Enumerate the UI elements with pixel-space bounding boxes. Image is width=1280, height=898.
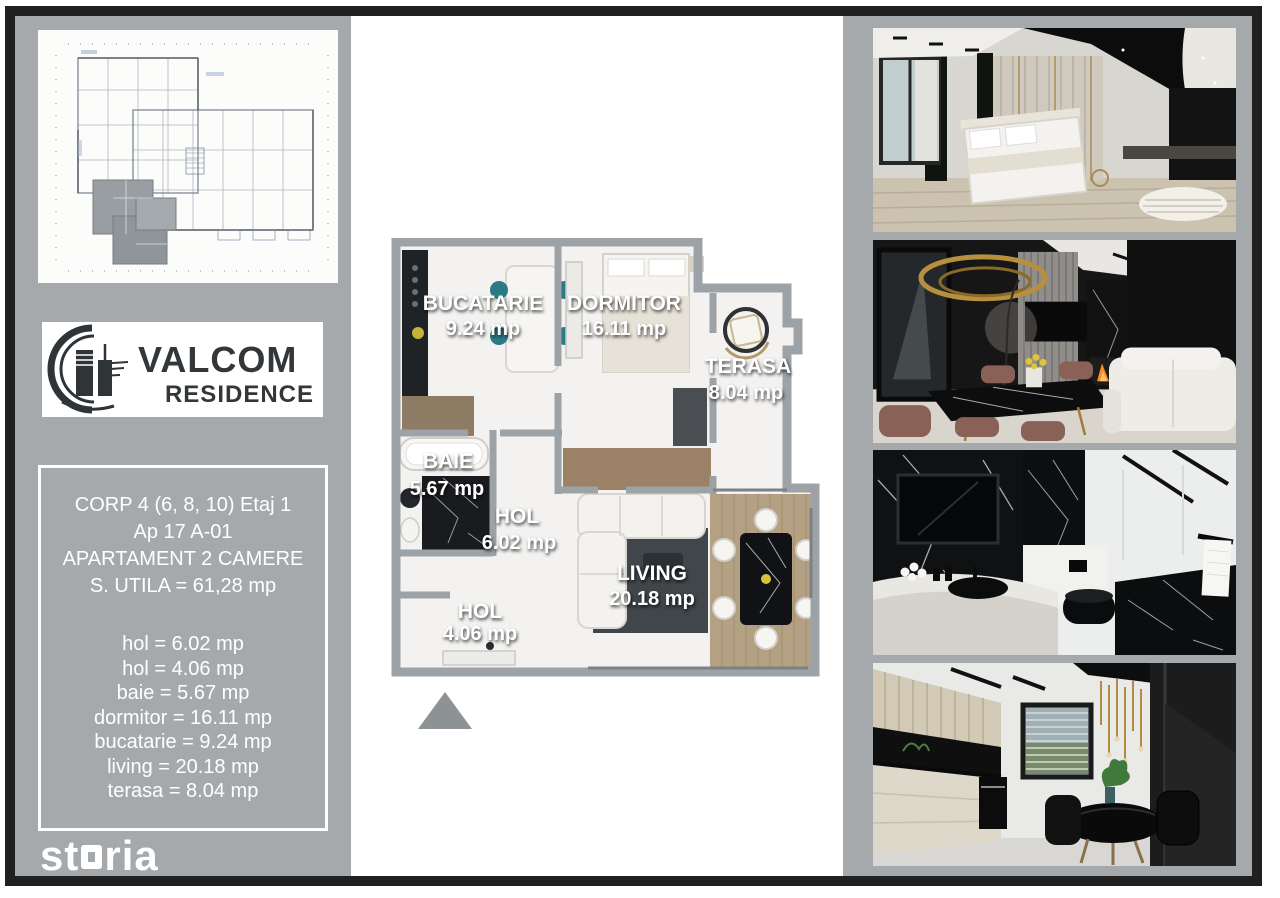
valcom-logo: VALCOM RESIDENCE xyxy=(42,322,323,417)
bedroom-render xyxy=(873,28,1236,232)
room-area-item: bucatarie = 9.24 mp xyxy=(41,730,325,755)
room-label-dormitor: DORMITOR xyxy=(567,292,681,315)
apartment-info-box: CORP 4 (6, 8, 10) Etaj 1 Ap 17 A-01 APAR… xyxy=(38,465,328,831)
room-label-baie: BAIE xyxy=(423,450,473,473)
logo-text-valcom: VALCOM xyxy=(138,339,297,380)
storia-text-right: ria xyxy=(104,832,158,880)
storia-watermark: stria xyxy=(40,832,159,880)
building-floor-plan-thumbnail xyxy=(38,30,338,283)
storia-o-glyph xyxy=(81,845,102,869)
storia-text-left: st xyxy=(40,832,79,880)
building-floor-plan-drawing xyxy=(38,30,338,283)
info-line-type: APARTAMENT 2 CAMERE xyxy=(41,546,325,573)
room-label-hol2: HOL xyxy=(458,600,503,623)
room-label-terasa: TERASA xyxy=(705,355,791,378)
room-area-living: 20.18 mp xyxy=(609,588,695,610)
logo-building-icon xyxy=(51,328,128,410)
room-area-hol1: 6.02 mp xyxy=(482,532,556,554)
room-area-terasa: 8.04 mp xyxy=(709,382,783,404)
photo-bedroom xyxy=(873,28,1236,232)
flyer-frame: VALCOM RESIDENCE CORP 4 (6, 8, 10) Etaj … xyxy=(5,6,1262,886)
logo-text-residence: RESIDENCE xyxy=(165,381,314,408)
room-area-item: terasa = 8.04 mp xyxy=(41,779,325,804)
logo-graphic: VALCOM RESIDENCE xyxy=(42,322,323,417)
info-line-ap: Ap 17 A-01 xyxy=(41,519,325,546)
photo-dining-living xyxy=(873,240,1236,443)
north-arrow-icon xyxy=(418,692,472,729)
photo-bathroom xyxy=(873,450,1236,655)
room-area-dormitor: 16.11 mp xyxy=(582,318,667,340)
right-panel xyxy=(843,16,1252,876)
room-label-living: LIVING xyxy=(617,562,687,585)
apartment-floor-plan: BUCATARIE 9.24 mp DORMITOR 16.11 mp TERA… xyxy=(373,222,843,752)
info-line-area: S. UTILA = 61,28 mp xyxy=(41,573,325,600)
room-area-item: hol = 6.02 mp xyxy=(41,632,325,657)
room-label-hol1: HOL xyxy=(495,505,540,528)
apartment-plan-drawing: BUCATARIE 9.24 mp DORMITOR 16.11 mp TERA… xyxy=(388,238,828,688)
listing-flyer: VALCOM RESIDENCE CORP 4 (6, 8, 10) Etaj … xyxy=(0,0,1280,898)
room-area-item: baie = 5.67 mp xyxy=(41,681,325,706)
info-line-corp: CORP 4 (6, 8, 10) Etaj 1 xyxy=(41,492,325,519)
room-area-item: dormitor = 16.11 mp xyxy=(41,706,325,731)
kitchen-render xyxy=(873,663,1236,866)
room-areas-list: hol = 6.02 mp hol = 4.06 mp baie = 5.67 … xyxy=(41,632,325,804)
photo-kitchen xyxy=(873,663,1236,866)
room-label-bucatarie: BUCATARIE xyxy=(423,292,544,315)
room-area-bucatarie: 9.24 mp xyxy=(446,318,520,340)
room-area-baie: 5.67 mp xyxy=(410,478,484,500)
bedroom-wood-strip xyxy=(563,448,711,490)
bathroom-render xyxy=(873,450,1236,655)
dining-living-render xyxy=(873,240,1236,443)
room-area-item: hol = 4.06 mp xyxy=(41,657,325,682)
left-panel: VALCOM RESIDENCE CORP 4 (6, 8, 10) Etaj … xyxy=(15,16,351,876)
room-area-item: living = 20.18 mp xyxy=(41,755,325,780)
room-area-hol2: 4.06 mp xyxy=(443,623,517,645)
